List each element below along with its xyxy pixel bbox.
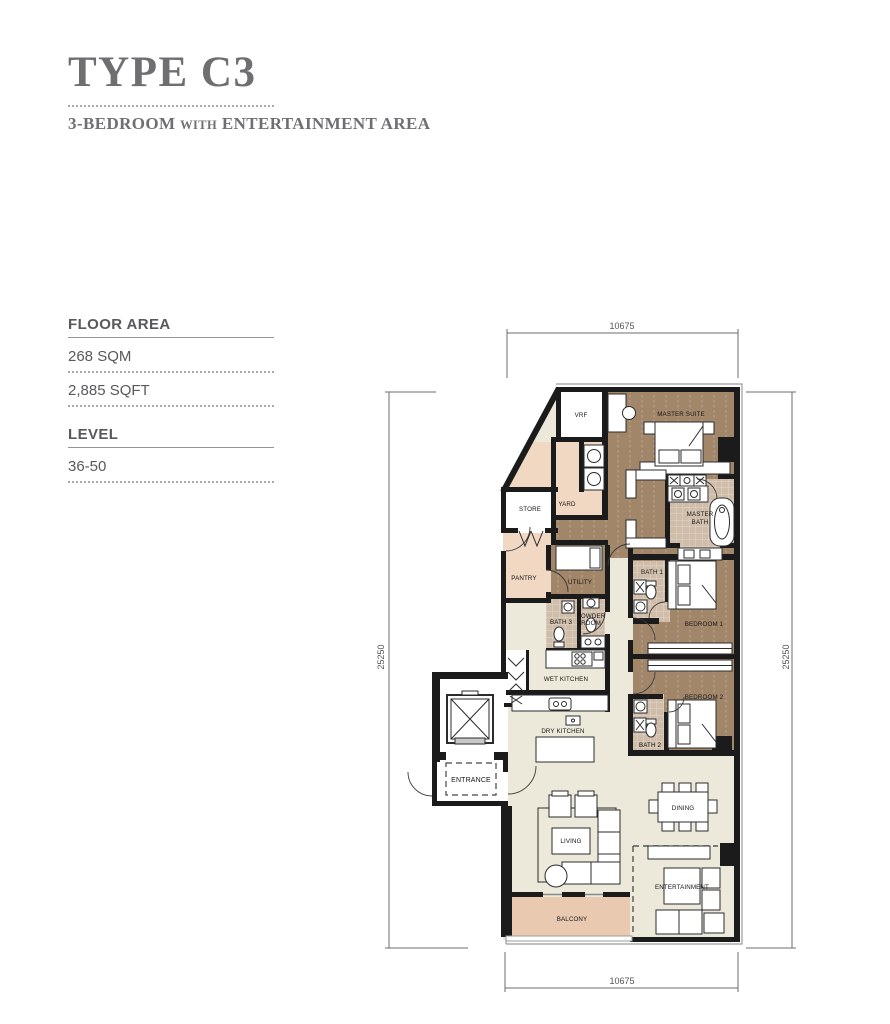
room-label-bedroom2: BEDROOM 2 xyxy=(685,694,724,701)
room-label-dry-kitchen: DRY KITCHEN xyxy=(541,728,584,735)
room-label-bath2: BATH 2 xyxy=(639,742,662,749)
room-label-balcony: BALCONY xyxy=(557,916,588,923)
room-label-bath3: BATH 3 xyxy=(550,619,573,626)
dimension-bottom: 10675 xyxy=(609,976,634,986)
room-label-store: STORE xyxy=(519,506,541,513)
room-label-powder-2: ROOM xyxy=(581,620,601,627)
room-label-yard: YARD xyxy=(558,501,576,508)
room-label-bedroom1: BEDROOM 1 xyxy=(685,621,724,628)
room-label-utility: UTILITY xyxy=(568,579,592,586)
room-label-pantry: PANTRY xyxy=(511,575,536,582)
floor-plan: VRF MASTER SUITE STORE YARD MASTER BATH … xyxy=(0,0,890,1024)
floor-plan-page: TYPE C3 3-BEDROOM with ENTERTAINMENT ARE… xyxy=(0,0,890,1024)
room-label-living: LIVING xyxy=(560,838,581,845)
room-label-master-bath-2: BATH xyxy=(692,519,709,526)
room-label-master-bath-1: MASTER xyxy=(687,511,714,518)
room-label-bath1: BATH 1 xyxy=(641,569,664,576)
room-label-vrf: VRF xyxy=(575,412,588,419)
room-label-dining: DINING xyxy=(672,805,695,812)
dimension-left: 25250 xyxy=(376,644,386,669)
room-label-powder-1: POWDER xyxy=(577,613,606,620)
room-label-wet-kitchen: WET KITCHEN xyxy=(544,676,588,683)
room-label-master-suite: MASTER SUITE xyxy=(657,411,705,418)
room-label-entrance: ENTRANCE xyxy=(451,777,491,784)
dimension-right: 25250 xyxy=(781,644,791,669)
room-label-entertainment: ENTERTAINMENT xyxy=(655,884,709,891)
dimension-top: 10675 xyxy=(609,321,634,331)
